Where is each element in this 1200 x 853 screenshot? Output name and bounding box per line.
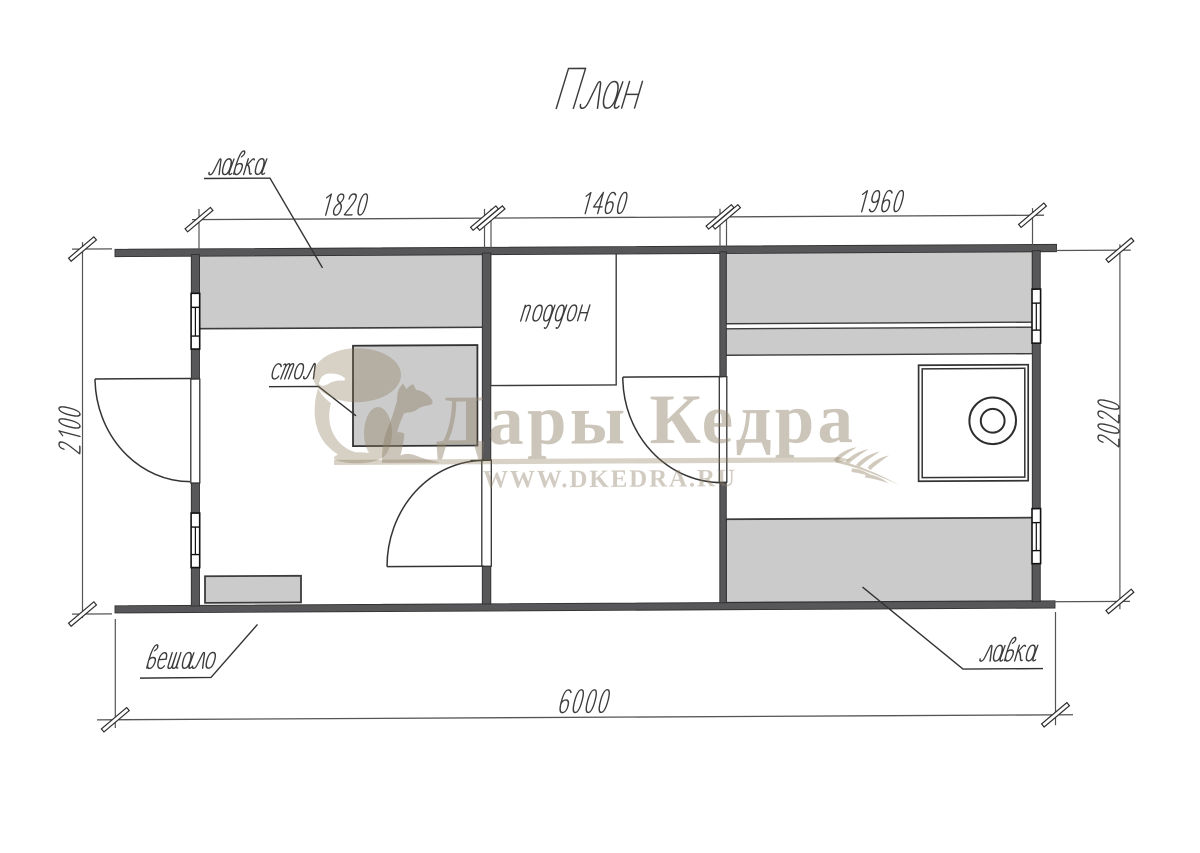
svg-text:Дары Кедра: Дары Кедра (436, 380, 853, 460)
